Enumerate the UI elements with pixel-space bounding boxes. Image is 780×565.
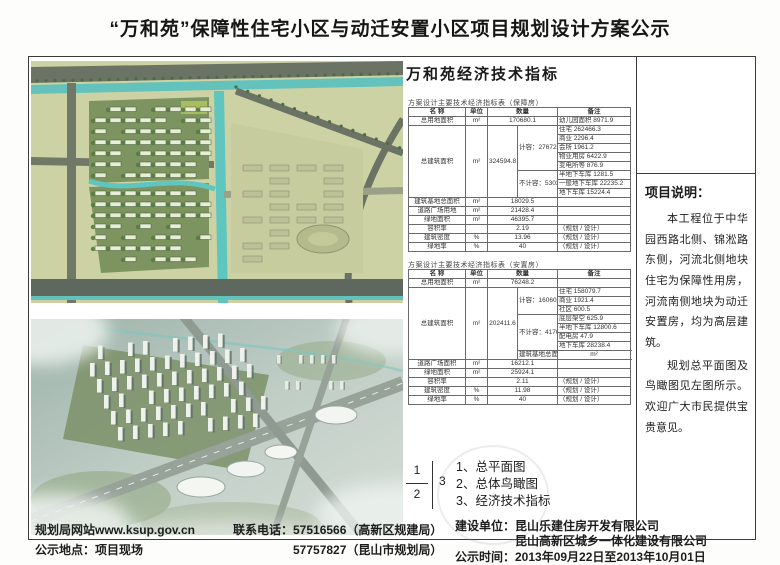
plan-building — [155, 257, 166, 262]
tower — [203, 335, 208, 349]
tower-shadow — [168, 424, 170, 437]
plan-street-tree — [281, 103, 284, 106]
aerial-view-image — [31, 319, 403, 535]
plan-street-tree — [323, 74, 326, 77]
plan-tree — [181, 214, 185, 218]
plan-tree — [166, 152, 170, 156]
plan-building — [185, 202, 196, 207]
plan-building — [200, 202, 211, 207]
plan-tree — [136, 225, 140, 229]
table-cell: m² — [466, 126, 488, 198]
plan-tree — [121, 214, 125, 218]
plan-building — [125, 202, 136, 207]
tower — [253, 414, 258, 428]
plan-tree — [136, 174, 140, 178]
plan-tree — [166, 163, 170, 167]
tower — [133, 426, 138, 440]
plan-building — [140, 118, 151, 123]
sheet-index-bottom: 2 — [406, 487, 428, 501]
footer-phone-1: 联系电话：57516566（高新区规建局） — [233, 521, 442, 538]
plan-building — [185, 173, 196, 178]
notice-board-frame: 万和苑经济技术指标 方案设计主要技术经济指标表（保障房） 名 称单位数量备注总用… — [28, 56, 756, 540]
table-header-cell: 单位 — [466, 270, 488, 279]
table-cell: 道路广场面积 — [409, 360, 466, 369]
table-cell: 绿地面积 — [409, 216, 466, 225]
tower-shadow — [244, 383, 246, 396]
lowrise-shadow — [288, 382, 290, 390]
plan-tree — [121, 258, 125, 262]
plan-tree — [91, 214, 95, 218]
plan-tree — [196, 108, 200, 112]
tower — [208, 418, 213, 432]
plan-building — [140, 213, 151, 218]
plan-building — [140, 140, 151, 145]
tower — [231, 399, 236, 413]
plan-tree — [166, 141, 170, 145]
footer-builder-2: 昆山高新区城乡一体化建设有限公司 — [515, 532, 707, 549]
table-cell: 不计容：41703.1 — [518, 315, 558, 351]
plan-street-tree — [246, 90, 249, 93]
table-cell: 76248.2 — [488, 279, 558, 288]
plan-tree — [136, 203, 140, 207]
tower — [120, 360, 125, 374]
plan-tree — [196, 203, 200, 207]
table-cell: 总建筑面积 — [409, 288, 466, 360]
tower — [180, 354, 185, 368]
tower-shadow — [223, 335, 225, 348]
plan-schematic-building — [243, 191, 262, 197]
plan-building — [125, 191, 136, 196]
plan-building — [170, 246, 181, 251]
plan-building — [95, 213, 106, 218]
table-cell: m² — [466, 360, 488, 369]
plan-street-tree — [188, 76, 191, 79]
tower — [104, 395, 109, 409]
lowrise-shadow — [324, 356, 326, 364]
table-cell: 商业 1921.4 — [558, 297, 631, 306]
plan-tree — [121, 203, 125, 207]
plan-tree — [196, 214, 200, 218]
table-cell: 住宅 262466.3 — [558, 126, 631, 135]
plan-schematic-building — [324, 165, 343, 171]
plan-building — [110, 246, 121, 251]
plan-building — [95, 140, 106, 145]
tower — [164, 389, 169, 403]
tower-shadow — [123, 429, 125, 442]
lowrise — [329, 381, 333, 390]
page-title: “万和苑”保障性住宅小区与动迁安置小区项目规划设计方案公示 — [0, 14, 780, 41]
tower-shadow — [251, 399, 253, 412]
plan-street-tree — [179, 76, 182, 79]
plan-tree — [91, 141, 95, 145]
tower-shadow — [183, 423, 185, 436]
project-note-box: 项目说明： 本工程位于中华园西路北侧、锦淞路东侧，河流北侧地块住宅为保障性用房，… — [637, 173, 755, 539]
plan-street-tree — [368, 73, 371, 76]
plan-building — [155, 140, 166, 145]
plan-street-tree — [305, 74, 308, 77]
tower-shadow — [222, 369, 224, 382]
tower-shadow — [215, 353, 217, 366]
plan-tree — [151, 108, 155, 112]
plan-tree — [91, 192, 95, 196]
table-header-cell: 单位 — [466, 108, 488, 117]
tower — [112, 378, 117, 392]
plan-tree — [196, 119, 200, 123]
table-cell: 道路广场用地 — [409, 207, 466, 216]
plan-building — [110, 151, 121, 156]
plan-building — [185, 191, 196, 196]
plan-tree — [136, 141, 140, 145]
plan-street-tree — [170, 77, 173, 80]
plan-tree — [91, 203, 95, 207]
plan-schematic-building — [297, 165, 316, 171]
lowrise-shadow — [313, 356, 315, 364]
plan-building — [170, 162, 181, 167]
plan-schematic-building — [270, 191, 289, 197]
plan-street-tree — [341, 73, 344, 76]
plan-tree — [151, 247, 155, 251]
table-cell: 绿地面积 — [409, 369, 466, 378]
tower-shadow — [213, 420, 215, 433]
sheet-index-top: 1 — [406, 463, 428, 477]
tower-shadow — [95, 365, 97, 378]
table-cell — [558, 369, 631, 378]
plan-tree — [166, 236, 170, 240]
plan-building — [95, 224, 106, 229]
plan-building — [155, 235, 166, 240]
plan-tree — [136, 130, 140, 134]
table-header-cell: 备注 — [558, 108, 631, 117]
tower — [97, 379, 102, 393]
table-cell: 半地下车库 12800.6 — [558, 324, 631, 333]
drawing-legend-list: 1、总平面图2、总体鸟瞰图3、经济技术指标 — [456, 459, 550, 510]
plan-tree — [136, 152, 140, 156]
tower — [119, 394, 124, 408]
lowrise-shadow — [343, 382, 345, 390]
plan-tree — [106, 141, 110, 145]
plan-street-tree — [152, 77, 155, 80]
plan-street-tree — [316, 116, 319, 119]
table-cell — [558, 207, 631, 216]
table-header-cell: 名 称 — [409, 108, 466, 117]
table-cell: 建筑密度 — [409, 387, 466, 396]
table-cell: 40 — [488, 243, 558, 252]
plan-tree — [91, 225, 95, 229]
table-cell: 容积率 — [409, 378, 466, 387]
table-cell: m² — [466, 288, 488, 360]
tower — [238, 415, 243, 429]
tower-shadow — [236, 401, 238, 414]
plan-building — [110, 213, 121, 218]
plan-tree — [166, 214, 170, 218]
table-cell: 地下车库 28238.4 — [558, 342, 631, 351]
plan-tree — [166, 258, 170, 262]
plan-building — [155, 162, 166, 167]
plan-schematic-building — [243, 256, 262, 262]
plan-schematic-building — [243, 165, 262, 171]
plan-tree — [151, 203, 155, 207]
plan-street-tree — [305, 111, 308, 114]
plan-building — [170, 257, 181, 262]
plan-street-tree — [269, 75, 272, 78]
table-cell: 绿地率 — [409, 243, 466, 252]
tower-shadow — [208, 337, 210, 350]
table-cell: % — [466, 396, 488, 405]
table-cell: （规划 / 设计） — [558, 225, 631, 234]
tower-shadow — [131, 411, 133, 424]
table-cell: 25924.1 — [488, 369, 558, 378]
plan-tree — [181, 192, 185, 196]
plan-street-tree — [293, 107, 296, 110]
lowrise-shadow — [280, 356, 282, 364]
plan-street-tree — [278, 74, 281, 77]
right-column: 项目说明： 本工程位于中华园西路北侧、锦淞路东侧，河流北侧地块住宅为保障性用房，… — [636, 57, 755, 539]
table-cell: m² — [466, 117, 488, 126]
plan-tree — [181, 163, 185, 167]
tower — [187, 370, 192, 384]
table-cell: 一般地下车库 22235.2 — [558, 180, 631, 189]
plan-building — [185, 140, 196, 145]
plan-schematic-building — [270, 217, 289, 223]
table-cell: 总用地面积 — [409, 279, 466, 288]
lowrise-shadow — [335, 356, 337, 364]
table-cell: 总用地面积 — [409, 117, 466, 126]
sheet-index-rule — [406, 483, 428, 484]
plan-schematic-building — [270, 243, 289, 249]
plan-tree — [106, 163, 110, 167]
table-cell: 商业 2296.4 — [558, 135, 631, 144]
tower-shadow — [147, 376, 149, 389]
lowrise-shadow — [332, 382, 334, 390]
plan-tree — [121, 192, 125, 196]
plan-building — [140, 246, 151, 251]
plan-building — [125, 107, 136, 112]
tower-shadow — [214, 386, 216, 399]
plan-street-tree — [260, 75, 263, 78]
tower — [143, 341, 148, 355]
tower-shadow — [245, 350, 247, 363]
table-cell: m² — [466, 198, 488, 207]
plan-tree — [151, 163, 155, 167]
plan-building — [125, 173, 136, 178]
tower — [224, 383, 229, 397]
plan-tree — [106, 225, 110, 229]
plan-street-tree — [233, 75, 236, 78]
table-cell: 13.96 — [488, 234, 558, 243]
lowrise — [310, 355, 314, 364]
table-cell: （规划 / 设计） — [558, 396, 631, 405]
plan-street-tree — [206, 76, 209, 79]
plan-tree — [151, 192, 155, 196]
project-note-paragraph: 规划总平面图及鸟瞰图见左图所示。欢迎广大市民提供宝贵意见。 — [645, 356, 748, 439]
tower — [261, 396, 266, 410]
plan-building — [110, 162, 121, 167]
legend-item: 1、总平面图 — [456, 459, 550, 476]
tower-shadow — [125, 362, 127, 375]
site-plan-image — [31, 61, 403, 303]
project-note-paragraphs: 本工程位于中华园西路北侧、锦淞路东侧，河流北侧地块住宅为保障性用房，河流南侧地块… — [645, 209, 748, 438]
table-cell: 幼儿园面积 8971.9 — [558, 117, 631, 126]
plan-street-tree — [314, 74, 317, 77]
tower — [218, 334, 223, 348]
plan-tree — [166, 225, 170, 229]
tower-shadow — [110, 363, 112, 376]
table-cell — [558, 279, 631, 288]
table-cell — [558, 360, 631, 369]
plan-building — [125, 235, 136, 240]
plan-tree — [91, 163, 95, 167]
tower-shadow — [184, 389, 186, 402]
tower — [150, 357, 155, 371]
plan-building — [110, 191, 121, 196]
table-cell: （规划 / 设计） — [558, 243, 631, 252]
plan-street-tree — [234, 85, 237, 88]
plan-tree — [196, 130, 200, 134]
tower — [135, 359, 140, 373]
table-cell: % — [466, 243, 488, 252]
plan-schematic-building — [324, 217, 343, 223]
plan-building — [200, 235, 211, 240]
plan-tree — [166, 130, 170, 134]
plan-street-tree — [242, 75, 245, 78]
table-cell: 绿地率 — [409, 396, 466, 405]
plan-building — [200, 140, 211, 145]
plan-tree — [106, 214, 110, 218]
plan-street-tree — [375, 137, 378, 140]
plan-schematic-building — [324, 191, 343, 197]
plan-street-tree — [386, 142, 389, 145]
tower — [118, 427, 123, 441]
tower-shadow — [103, 347, 105, 360]
plan-schematic-building — [243, 217, 262, 223]
plan-building — [95, 162, 106, 167]
plan-building — [110, 107, 121, 112]
plan-building — [185, 118, 196, 123]
plan-tree — [151, 258, 155, 262]
plan-street-tree — [107, 78, 110, 81]
table-cell: 建筑密度 — [409, 234, 466, 243]
plan-schematic-building — [324, 178, 343, 184]
plan-tree — [91, 174, 95, 178]
table-cell — [558, 216, 631, 225]
tower — [111, 411, 116, 425]
tower-shadow — [228, 418, 230, 431]
plan-building — [170, 202, 181, 207]
plan-tree — [151, 174, 155, 178]
table-cell: 计容：160602.9 — [518, 288, 558, 315]
lowrise-shadow — [302, 356, 304, 364]
plan-tree — [91, 130, 95, 134]
table-cell: （规划 / 设计） — [558, 387, 631, 396]
plan-tree — [181, 203, 185, 207]
lowrise — [321, 355, 325, 364]
tower-shadow — [243, 417, 245, 430]
table-cell: （规划 / 设计） — [558, 234, 631, 243]
plan-building — [140, 151, 151, 156]
plan-tree — [91, 152, 95, 156]
plan-street-tree — [251, 75, 254, 78]
plan-building — [110, 118, 121, 123]
plan-street-tree — [44, 79, 47, 82]
table-header-cell: 数量 — [488, 108, 558, 117]
plan-building — [200, 213, 211, 218]
tower — [141, 408, 146, 422]
table-cell: 不计容：53036.3 — [518, 171, 558, 198]
table-cell: 变电所等 876.9 — [558, 162, 631, 171]
plan-tree — [106, 192, 110, 196]
plan-tree — [106, 203, 110, 207]
plan-tree — [151, 141, 155, 145]
plan-building — [110, 224, 121, 229]
tower-shadow — [133, 344, 135, 357]
plan-building — [95, 129, 106, 134]
plan-street-tree — [215, 76, 218, 79]
tower-shadow — [207, 370, 209, 383]
tower-shadow — [102, 381, 104, 394]
tower-shadow — [229, 385, 231, 398]
table-cell: 18029.5 — [488, 198, 558, 207]
sheet-index-side: 3 — [439, 474, 446, 488]
tower — [126, 410, 131, 424]
plan-tree — [181, 152, 185, 156]
plan-tree — [151, 214, 155, 218]
table-cell: 46395.7 — [488, 216, 558, 225]
plan-street-tree — [143, 77, 146, 80]
plan-building — [185, 107, 196, 112]
tower-shadow — [161, 408, 163, 421]
plan-street-tree — [161, 77, 164, 80]
tower-shadow — [154, 392, 156, 405]
tower — [246, 398, 251, 412]
plan-building — [185, 213, 196, 218]
plan-building — [110, 202, 121, 207]
plan-schematic-building — [270, 204, 289, 210]
plan-building — [140, 224, 151, 229]
plan-street-tree — [386, 72, 389, 75]
tower-shadow — [169, 391, 171, 404]
tower-shadow — [162, 375, 164, 388]
plan-street-tree — [269, 98, 272, 101]
lowrise — [340, 381, 344, 390]
plan-building — [110, 140, 121, 145]
table-cell: 物业用房 6422.9 — [558, 153, 631, 162]
plan-street-tree — [350, 73, 353, 76]
plan-tree — [121, 247, 125, 251]
plan-tree — [91, 247, 95, 251]
plan-building — [95, 151, 106, 156]
tower-shadow — [258, 415, 260, 428]
tower-shadow — [199, 388, 201, 401]
lowrise — [332, 355, 336, 364]
project-note-paragraph: 本工程位于中华园西路北侧、锦淞路东侧，河流北侧地块住宅为保障性用房，河流南侧地块… — [645, 209, 748, 354]
tower-shadow — [170, 357, 172, 370]
plan-tree — [181, 119, 185, 123]
tower-shadow — [252, 366, 254, 379]
plan-tree — [121, 130, 125, 134]
plan-building — [185, 151, 196, 156]
plan-tree — [151, 130, 155, 134]
lowrise-shadow — [299, 382, 301, 390]
plan-tree — [106, 119, 110, 123]
tower-shadow — [178, 340, 180, 353]
plan-tree — [151, 119, 155, 123]
plan-building — [95, 246, 106, 251]
table-cell: 11.98 — [488, 387, 558, 396]
table-cell: m² — [558, 351, 631, 360]
legend-item: 3、经济技术指标 — [456, 493, 550, 510]
plan-building — [170, 191, 181, 196]
table-cell: 202411.6 — [488, 288, 518, 360]
